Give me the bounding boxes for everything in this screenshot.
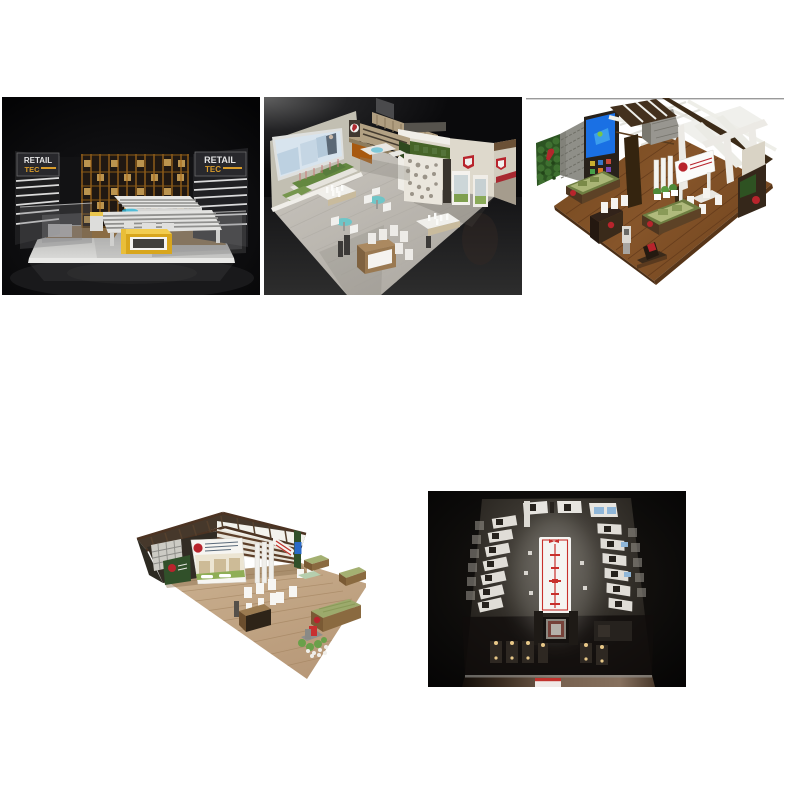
svg-text:RETAIL: RETAIL: [204, 155, 236, 165]
svg-text:RETAIL: RETAIL: [24, 156, 52, 165]
svg-text:TEC: TEC: [25, 165, 41, 174]
svg-text:TEC: TEC: [205, 165, 221, 174]
